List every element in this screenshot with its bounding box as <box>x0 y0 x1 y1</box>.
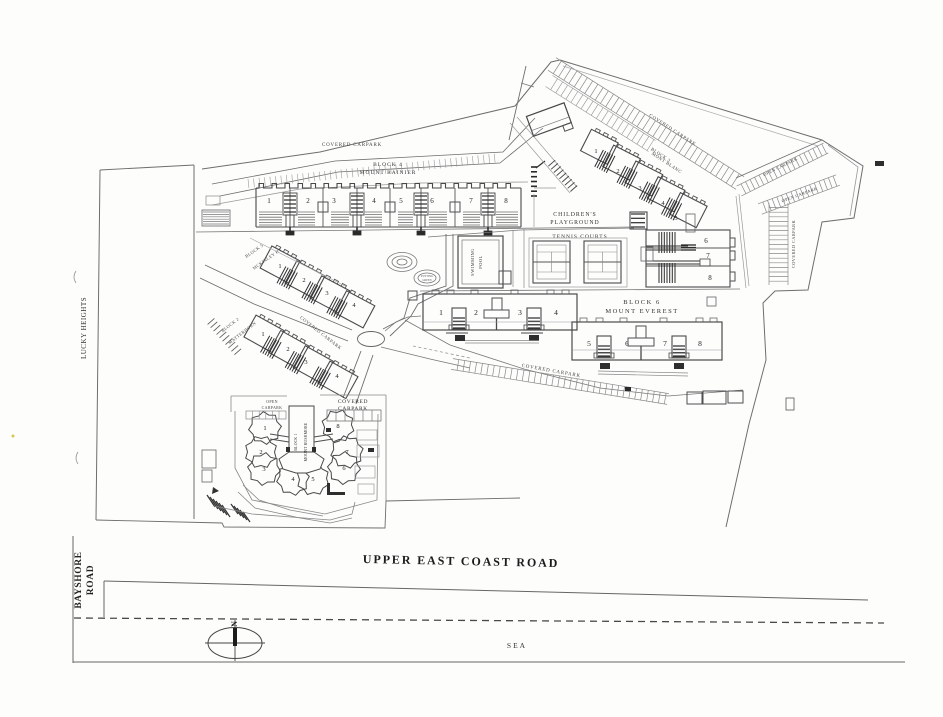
svg-text:6: 6 <box>704 237 708 245</box>
svg-text:SEA: SEA <box>507 641 527 650</box>
svg-text:2: 2 <box>474 308 478 317</box>
svg-text:BLOCK 4: BLOCK 4 <box>373 162 403 168</box>
svg-text:7: 7 <box>663 339 667 348</box>
svg-text:COVERED: COVERED <box>338 399 368 405</box>
svg-text:1: 1 <box>278 263 281 270</box>
svg-text:6: 6 <box>625 339 629 348</box>
svg-text:COVERED CARPARK: COVERED CARPARK <box>322 143 382 148</box>
svg-text:CARPARK: CARPARK <box>338 406 368 412</box>
svg-text:ROAD: ROAD <box>86 565 96 595</box>
svg-text:PLAYGROUND: PLAYGROUND <box>550 220 599 226</box>
svg-text:7: 7 <box>469 197 473 205</box>
svg-text:BLOCK 1: BLOCK 1 <box>294 433 298 450</box>
svg-text:2: 2 <box>259 449 262 456</box>
svg-text:OPEN: OPEN <box>266 399 278 404</box>
svg-text:CARPARK: CARPARK <box>262 405 283 410</box>
svg-text:3: 3 <box>262 466 265 473</box>
svg-text:8: 8 <box>504 197 508 205</box>
svg-text:4: 4 <box>554 308 558 317</box>
svg-text:6: 6 <box>430 197 434 205</box>
svg-text:8: 8 <box>698 339 702 348</box>
svg-text:3: 3 <box>518 308 522 317</box>
svg-text:3: 3 <box>638 185 641 192</box>
svg-text:5: 5 <box>674 215 677 222</box>
svg-text:MOUNT RAINIER: MOUNT RAINIER <box>360 170 417 176</box>
svg-text:N: N <box>230 621 239 627</box>
svg-text:MOUNT RUSHMORE: MOUNT RUSHMORE <box>304 422 308 461</box>
svg-text:BAYSHORE: BAYSHORE <box>74 551 84 608</box>
svg-text:5: 5 <box>399 197 403 205</box>
svg-text:MOUNT EVEREST: MOUNT EVEREST <box>605 308 678 315</box>
svg-text:GREEN: GREEN <box>422 279 431 282</box>
svg-text:1: 1 <box>261 331 264 338</box>
svg-text:PUTTING: PUTTING <box>421 275 433 278</box>
svg-text:8: 8 <box>708 274 712 282</box>
svg-text:SWIMMING: SWIMMING <box>470 248 475 276</box>
svg-text:2: 2 <box>616 168 619 175</box>
svg-text:LUCKY HEIGHTS: LUCKY HEIGHTS <box>80 297 88 359</box>
svg-text:TENNIS COURTS: TENNIS COURTS <box>552 234 607 240</box>
svg-text:4: 4 <box>372 197 376 205</box>
svg-text:3: 3 <box>304 359 307 366</box>
svg-text:POOL: POOL <box>478 255 483 268</box>
svg-text:5: 5 <box>587 339 591 348</box>
svg-text:2: 2 <box>286 346 289 353</box>
svg-text:8: 8 <box>336 423 339 430</box>
svg-text:1: 1 <box>263 425 266 432</box>
svg-text:CHILDREN'S: CHILDREN'S <box>553 212 597 218</box>
svg-text:1: 1 <box>439 308 443 317</box>
svg-text:COVERED CARPARK: COVERED CARPARK <box>791 219 796 268</box>
svg-text:3: 3 <box>325 290 328 297</box>
svg-text:2: 2 <box>302 277 305 284</box>
svg-text:3: 3 <box>332 197 336 205</box>
svg-text:1: 1 <box>594 148 597 155</box>
svg-text:2: 2 <box>306 197 310 205</box>
svg-text:5: 5 <box>311 476 314 483</box>
svg-text:1: 1 <box>267 197 271 205</box>
svg-text:BLOCK 6: BLOCK 6 <box>623 299 660 306</box>
